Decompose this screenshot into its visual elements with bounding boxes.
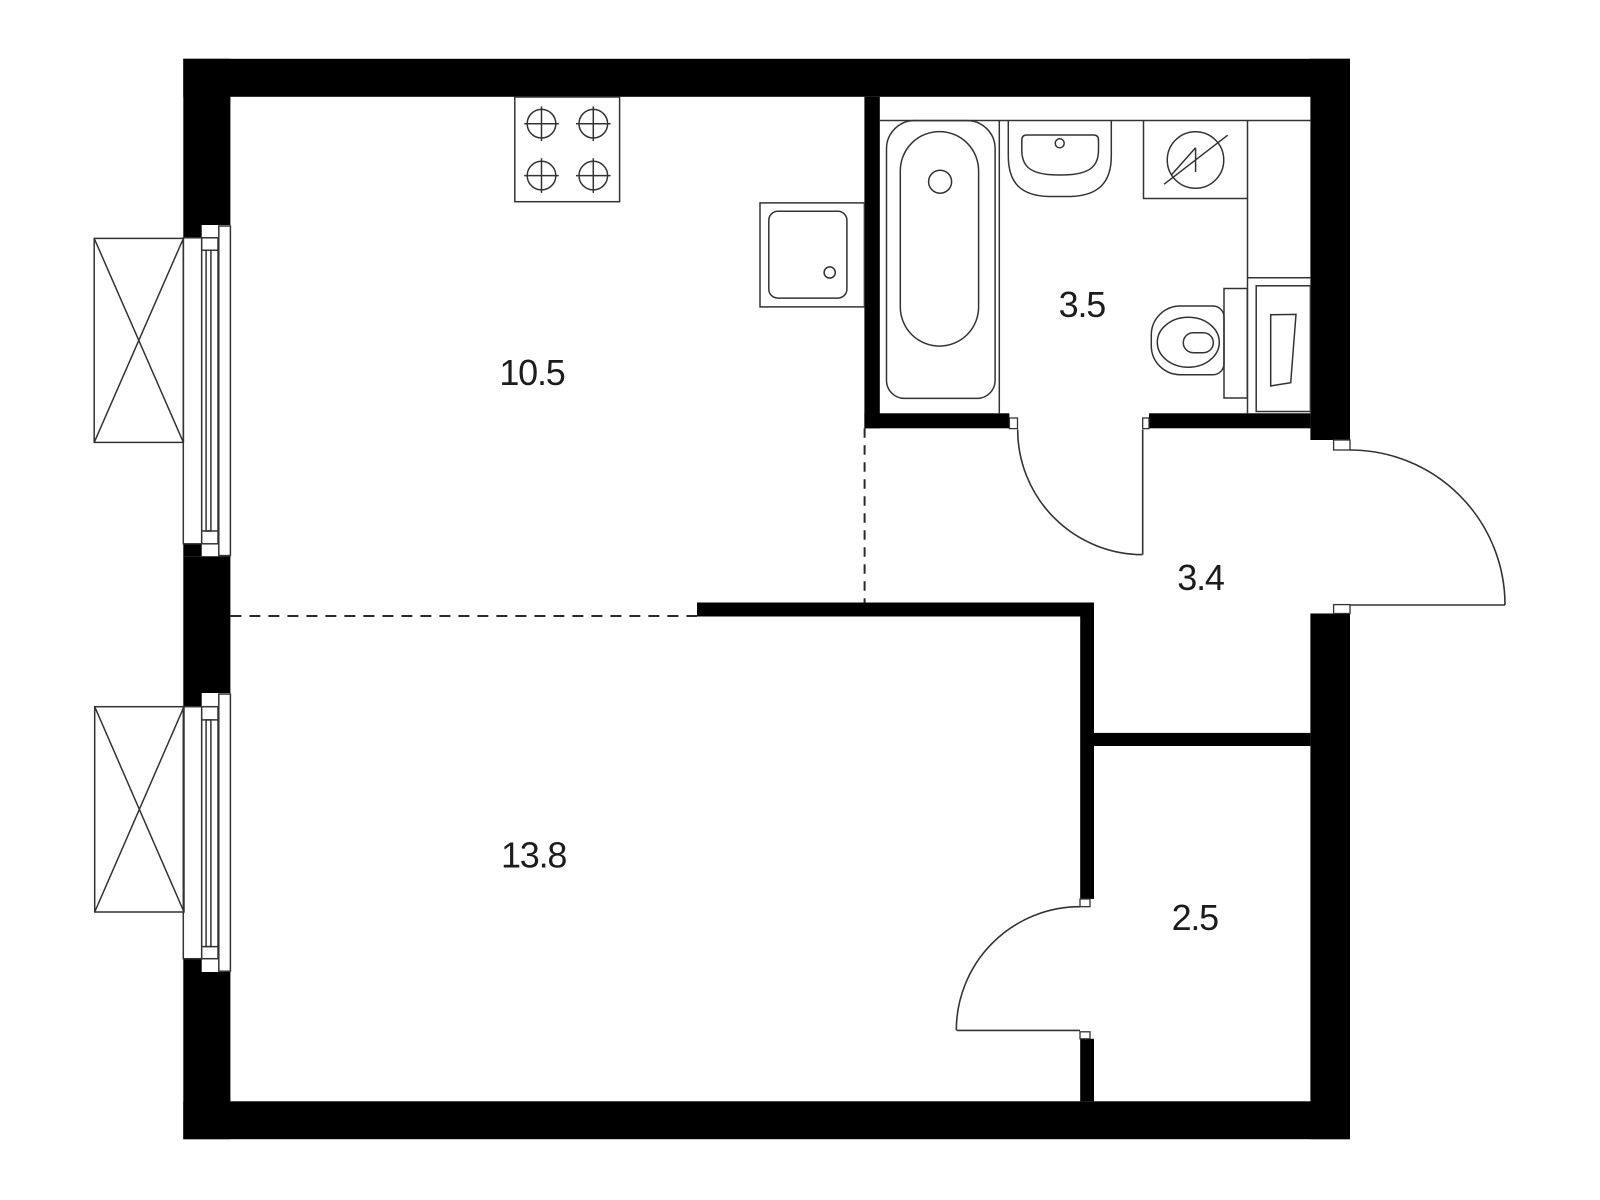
svg-text:13.8: 13.8 [501,834,566,875]
svg-text:10.5: 10.5 [499,352,564,393]
svg-text:2.5: 2.5 [1172,897,1219,938]
svg-text:3.4: 3.4 [1177,557,1224,598]
svg-text:3.5: 3.5 [1059,284,1106,325]
